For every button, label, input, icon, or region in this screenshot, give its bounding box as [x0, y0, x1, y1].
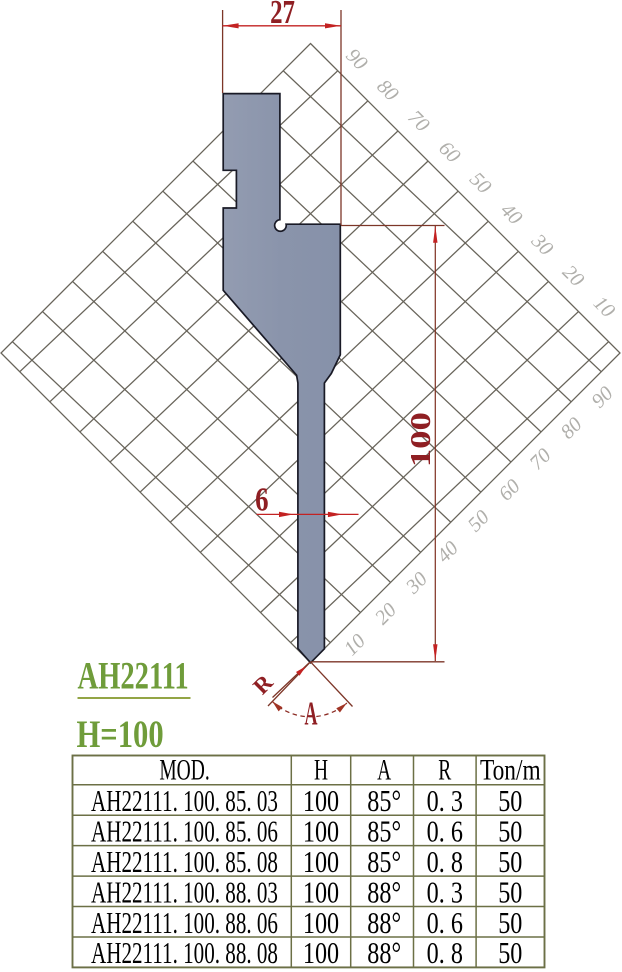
svg-text:A: A — [377, 753, 392, 786]
svg-text:50: 50 — [498, 906, 522, 941]
svg-text:85°: 85° — [367, 845, 401, 880]
svg-text:H: H — [314, 753, 328, 786]
svg-text:100: 100 — [303, 906, 339, 941]
svg-text:A: A — [304, 694, 317, 732]
svg-text:100: 100 — [406, 412, 437, 467]
svg-text:6: 6 — [255, 481, 268, 519]
svg-text:88°: 88° — [367, 936, 401, 971]
svg-text:AH22111: AH22111 — [78, 654, 189, 698]
svg-text:100: 100 — [303, 876, 339, 911]
svg-text:85°: 85° — [367, 815, 401, 850]
svg-text:88°: 88° — [367, 906, 401, 941]
svg-text:50: 50 — [498, 876, 522, 911]
svg-text:100: 100 — [303, 815, 339, 850]
svg-text:100: 100 — [303, 845, 339, 880]
svg-text:MOD.: MOD. — [159, 753, 209, 786]
svg-text:50: 50 — [498, 815, 522, 850]
svg-text:100: 100 — [303, 784, 339, 819]
svg-text:88°: 88° — [367, 876, 401, 911]
svg-text:100: 100 — [303, 936, 339, 971]
svg-text:0. 3: 0. 3 — [427, 876, 463, 911]
svg-text:0. 3: 0. 3 — [427, 784, 463, 819]
svg-text:0. 6: 0. 6 — [427, 815, 463, 850]
svg-text:50: 50 — [498, 845, 522, 880]
svg-text:0. 8: 0. 8 — [427, 845, 463, 880]
svg-text:Ton/m: Ton/m — [480, 753, 541, 786]
svg-text:H=100: H=100 — [77, 712, 164, 756]
svg-text:50: 50 — [498, 936, 522, 971]
svg-text:85°: 85° — [367, 784, 401, 819]
svg-text:R: R — [438, 753, 451, 786]
svg-text:50: 50 — [498, 784, 522, 819]
svg-text:0. 8: 0. 8 — [427, 936, 463, 971]
svg-text:AH22111. 100. 88. 08: AH22111. 100. 88. 08 — [91, 935, 278, 970]
svg-text:27: 27 — [270, 0, 295, 31]
svg-text:0. 6: 0. 6 — [427, 906, 463, 941]
